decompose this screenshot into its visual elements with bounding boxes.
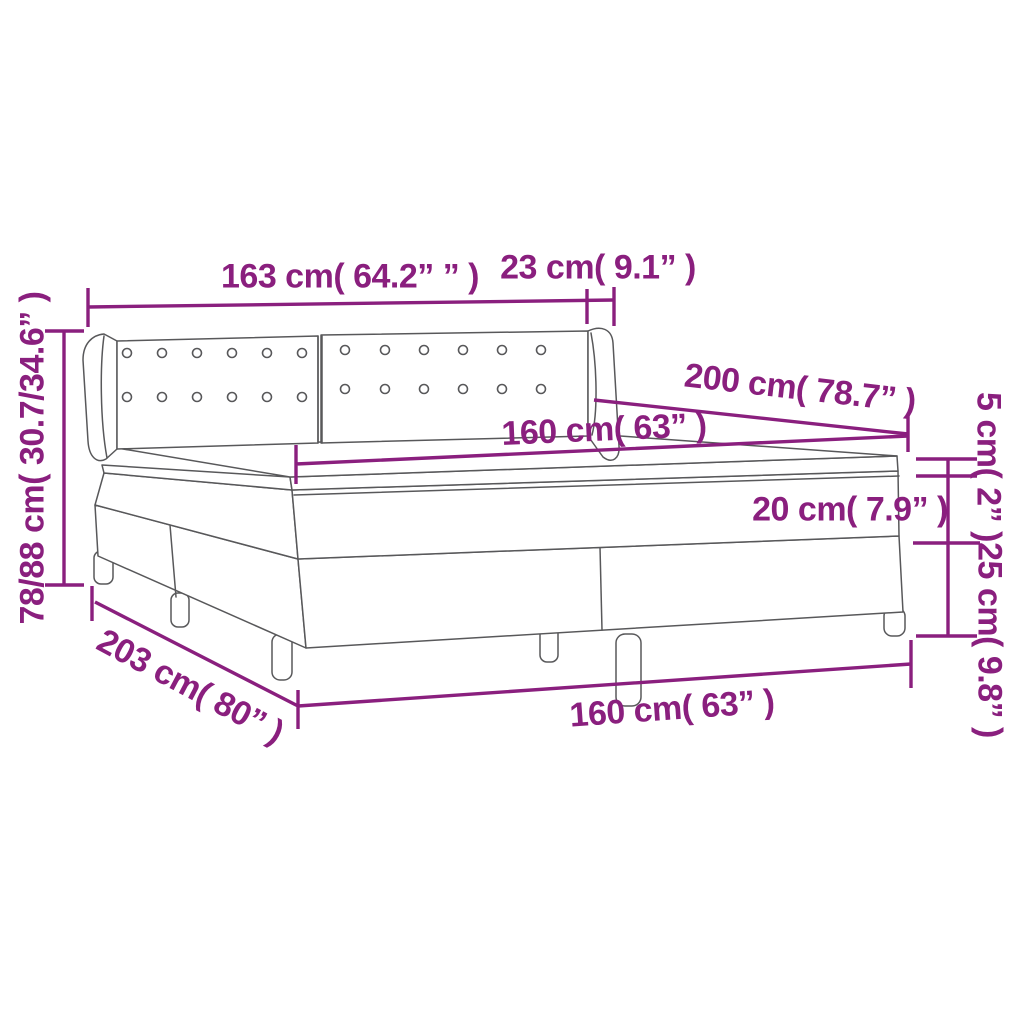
dim-label-wing-depth: 23 cm( 9.1” ) xyxy=(500,249,696,288)
dim-label-base-height: 25 cm( 9.8” ) xyxy=(970,542,1009,738)
dimension-diagram: 163 cm( 64.2” ” ) 23 cm( 9.1” ) 78/88 cm… xyxy=(0,0,1024,1024)
dim-line-headboard-width xyxy=(88,300,614,307)
headboard-left-wing xyxy=(83,334,117,461)
dim-label-topper-height: 5 cm( 2” ) xyxy=(969,392,1008,542)
dim-label-headboard-width: 163 cm( 64.2” ” ) xyxy=(221,258,479,297)
dim-label-headboard-height: 78/88 cm( 30.7/34.6” ) xyxy=(14,291,53,624)
headboard-panel-left xyxy=(117,336,318,449)
dim-label-mattress-height: 20 cm( 7.9” ) xyxy=(752,491,948,530)
